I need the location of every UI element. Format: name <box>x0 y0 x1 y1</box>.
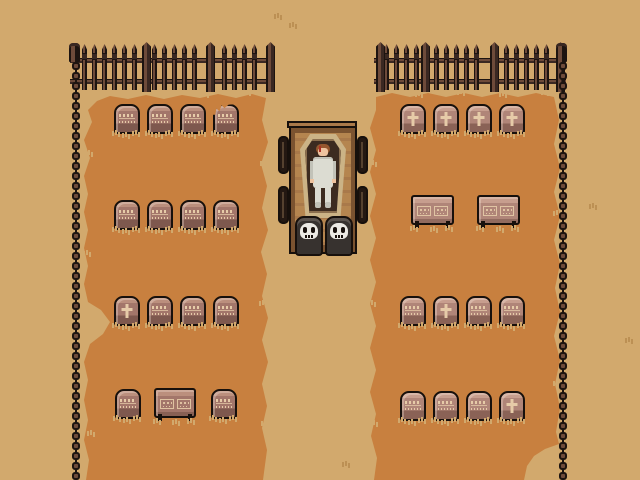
side-fence-post <box>72 102 80 110</box>
fence-post <box>206 42 215 92</box>
side-fence-post <box>72 392 80 400</box>
inscription-line <box>218 306 234 309</box>
inscription-line <box>218 114 234 117</box>
grass-tuft <box>148 226 150 231</box>
side-fence-post <box>559 302 567 310</box>
memorial-monument[interactable] <box>411 195 454 225</box>
hearse-cart[interactable] <box>278 120 368 256</box>
grass-tuft <box>467 322 469 327</box>
fence-picket <box>444 44 449 90</box>
side-fence-post <box>72 172 80 180</box>
grass-tuft <box>510 419 512 424</box>
grass-tuft <box>191 324 193 329</box>
grass-tuft <box>115 130 117 135</box>
epitaph-inscription <box>405 306 421 315</box>
side-fence-post <box>72 442 80 450</box>
epitaph-inscription <box>185 306 201 315</box>
grass-tuft <box>448 225 450 230</box>
side-fence-post <box>559 112 567 120</box>
inscription-line <box>119 114 135 117</box>
grass-tuft <box>168 130 170 135</box>
fence-picket <box>232 44 237 90</box>
inscription-line <box>152 306 168 309</box>
grass-tuft <box>421 322 423 327</box>
cross-engraving <box>408 112 419 126</box>
grass-tuft <box>115 226 117 231</box>
grass-tuft <box>168 226 170 231</box>
grass-tuft <box>434 417 436 422</box>
inscription-line <box>120 403 136 404</box>
corpse[interactable] <box>305 139 341 213</box>
side-fence-post <box>72 312 80 320</box>
epitaph-inscription <box>152 306 168 315</box>
side-fence-post <box>72 62 80 70</box>
inscription-line <box>185 214 201 215</box>
fence-picket <box>172 44 177 90</box>
side-fence-post <box>72 212 80 220</box>
grass-tuft <box>232 415 234 420</box>
grass-tuft <box>148 130 150 135</box>
memorial-plaque <box>434 206 448 216</box>
corpse-foot <box>315 202 321 208</box>
grass-tuft <box>86 250 88 255</box>
inscription-line <box>471 405 487 406</box>
side-fence-post <box>72 202 80 210</box>
memorial-plaque <box>160 399 174 409</box>
skull-mouth <box>305 235 307 238</box>
side-fence-post <box>72 272 80 280</box>
grass-tuft <box>201 322 203 327</box>
epitaph-inscription <box>218 114 234 123</box>
side-fence-post <box>559 472 567 480</box>
memorial-plaque <box>483 206 497 216</box>
fence-corner-post <box>69 43 80 62</box>
epitaph-inscription <box>471 401 487 410</box>
inscription-line <box>152 118 168 119</box>
inscription-line <box>185 114 201 117</box>
coffin-interior <box>305 139 341 213</box>
side-fence-post <box>72 262 80 270</box>
epitaph-inscription <box>185 114 201 123</box>
fence-picket <box>404 44 409 90</box>
inscription-line <box>218 121 234 123</box>
inscription-line <box>405 401 421 404</box>
grass-tuft <box>520 130 522 135</box>
side-fence-post <box>72 222 80 230</box>
grass-tuft <box>477 419 479 424</box>
grass-tuft <box>115 322 117 327</box>
iron-fence-segment <box>374 43 566 93</box>
skull-face-icon <box>330 223 348 239</box>
grass-tuft <box>592 203 594 208</box>
corpse-leg <box>325 188 331 203</box>
cross-engraving <box>507 399 518 413</box>
grass-tuft <box>158 324 160 329</box>
inscription-line <box>152 313 168 315</box>
grass-tuft <box>444 324 446 329</box>
grass-tuft <box>201 226 203 231</box>
cross-engraving <box>441 304 452 318</box>
grass-tuft <box>168 322 170 327</box>
epitaph-inscription <box>504 306 520 315</box>
side-fence-post <box>72 332 80 340</box>
inscription-line <box>216 399 232 402</box>
grass-tuft <box>234 130 236 135</box>
cart-wheel <box>278 186 289 224</box>
grass-tuft <box>212 415 214 420</box>
side-fence-post <box>559 402 567 410</box>
memorial-monument[interactable] <box>154 388 196 418</box>
side-fence-post <box>72 472 80 480</box>
inscription-line <box>504 306 520 309</box>
epitaph-inscription <box>218 306 234 315</box>
inscription-line <box>119 121 135 123</box>
side-fence-post <box>559 382 567 390</box>
side-fence-post <box>559 252 567 260</box>
corpse-face <box>318 148 328 156</box>
inscription-line <box>405 306 421 309</box>
grass-tuft <box>181 226 183 231</box>
side-fence-post <box>559 82 567 90</box>
inscription-line <box>471 306 487 309</box>
grass-tuft <box>500 130 502 135</box>
grass-tuft <box>191 132 193 137</box>
epitaph-inscription <box>471 306 487 315</box>
cart-wheel <box>357 186 368 224</box>
side-fence-post <box>559 182 567 190</box>
side-fence-post <box>559 462 567 470</box>
fence-picket <box>92 44 97 90</box>
inscription-line <box>185 118 201 119</box>
inscription-line <box>405 310 421 311</box>
side-fence-post <box>72 452 80 460</box>
grass-tuft <box>158 228 160 233</box>
grass-tuft <box>181 322 183 327</box>
grass-tuft <box>234 322 236 327</box>
side-fence-post <box>72 192 80 200</box>
side-fence-post <box>559 372 567 380</box>
grass-tuft <box>520 417 522 422</box>
coffin[interactable] <box>300 134 346 218</box>
fence-picket <box>122 44 127 90</box>
fence-post <box>421 42 430 92</box>
epitaph-inscription <box>185 210 201 219</box>
side-fence-post <box>72 152 80 160</box>
grass-tuft <box>444 132 446 137</box>
grass-tuft <box>126 417 128 422</box>
grass-tuft <box>90 430 92 435</box>
grass-tuft <box>411 132 413 137</box>
inscription-line <box>119 210 135 213</box>
fence-picket <box>504 44 509 90</box>
grass-tuft <box>262 300 264 305</box>
grass-tuft <box>411 324 413 329</box>
inscription-line <box>405 405 421 406</box>
epitaph-inscription <box>152 210 168 219</box>
grass-tuft <box>222 417 224 422</box>
side-fence-post <box>72 292 80 300</box>
inscription-line <box>185 210 201 213</box>
grass-tuft <box>487 417 489 422</box>
grass-tuft <box>136 415 138 420</box>
side-fence-post <box>559 72 567 80</box>
grass-tuft <box>421 130 423 135</box>
side-fence-post <box>559 212 567 220</box>
side-fence-post <box>559 172 567 180</box>
side-fence-post <box>559 242 567 250</box>
side-fence-post <box>559 442 567 450</box>
side-fence-post <box>72 242 80 250</box>
cart-wheel <box>278 136 289 174</box>
grass-tuft <box>292 22 294 27</box>
fence-picket <box>132 44 137 90</box>
cross-engraving <box>122 304 133 318</box>
grass-tuft <box>487 130 489 135</box>
inscription-line <box>438 401 454 404</box>
skull-creature[interactable] <box>295 216 323 256</box>
grass-tuft <box>433 226 435 231</box>
side-fence-post <box>72 162 80 170</box>
side-fence-post <box>72 382 80 390</box>
grass-tuft <box>191 228 193 233</box>
grass-tuft <box>467 130 469 135</box>
grass-patch-right <box>370 93 560 480</box>
side-fence-post <box>72 462 80 470</box>
inscription-line <box>185 121 201 123</box>
grass-tuft <box>135 226 137 231</box>
side-fence-post <box>559 322 567 330</box>
side-fence-post <box>559 432 567 440</box>
grass-tuft <box>264 420 266 425</box>
grass-tuft <box>371 300 373 305</box>
grass-tuft <box>372 160 374 165</box>
side-fence-post <box>72 372 80 380</box>
grass-tuft <box>477 132 479 137</box>
corpse-hand <box>332 179 336 183</box>
epitaph-inscription <box>119 114 135 123</box>
cross-engraving <box>507 112 518 126</box>
inscription-line <box>120 399 136 402</box>
memorial-plaque <box>417 206 431 216</box>
grass-tuft <box>434 130 436 135</box>
grass-tuft <box>487 322 489 327</box>
fence-picket <box>152 44 157 90</box>
grass-tuft <box>224 132 226 137</box>
cross-engraving <box>474 112 485 126</box>
skull-eyes <box>303 227 307 233</box>
fence-post <box>266 42 275 92</box>
side-fence-post <box>559 152 567 160</box>
inscription-line <box>119 214 135 215</box>
side-fence-post <box>559 292 567 300</box>
side-fence-post <box>72 232 80 240</box>
skull-creature[interactable] <box>325 216 353 256</box>
skull-eyes <box>333 227 337 233</box>
inscription-line <box>504 310 520 311</box>
side-fence-post <box>559 342 567 350</box>
inscription-line <box>216 406 232 408</box>
grass-tuft <box>454 417 456 422</box>
side-fence-post <box>72 322 80 330</box>
grass-tuft <box>125 228 127 233</box>
grass-tuft <box>444 419 446 424</box>
inscription-line <box>405 408 421 410</box>
side-fence-post <box>559 362 567 370</box>
side-fence-post <box>72 362 80 370</box>
fence-picket <box>252 44 257 90</box>
inscription-line <box>152 214 168 215</box>
side-fence-post <box>72 122 80 130</box>
inscription-line <box>218 217 234 219</box>
grass-tuft <box>401 130 403 135</box>
side-fence-post <box>72 72 80 80</box>
game-viewport[interactable] <box>0 0 640 480</box>
grass-tuft <box>263 160 265 165</box>
grass-tuft <box>88 150 90 155</box>
fence-picket <box>434 44 439 90</box>
inscription-line <box>218 210 234 213</box>
epitaph-inscription <box>216 399 232 408</box>
side-fence-post <box>72 92 80 100</box>
epitaph-inscription <box>120 399 136 408</box>
grass-tuft <box>201 130 203 135</box>
side-fence-post <box>72 132 80 140</box>
iron-fence-segment <box>70 43 273 93</box>
fence-picket <box>162 44 167 90</box>
inscription-line <box>405 313 421 315</box>
grass-tuft <box>467 417 469 422</box>
corpse-hand <box>310 179 314 183</box>
inscription-line <box>152 310 168 311</box>
memorial-monument[interactable] <box>477 195 520 225</box>
grass-tuft <box>401 417 403 422</box>
grass-tuft <box>135 322 137 327</box>
inscription-line <box>120 406 136 408</box>
corpse-leg <box>315 188 321 203</box>
fence-corner-post <box>556 43 567 62</box>
grass-tuft <box>190 418 192 423</box>
inscription-line <box>152 217 168 219</box>
inscription-line <box>438 408 454 410</box>
inscription-line <box>152 121 168 123</box>
inscription-line <box>471 313 487 315</box>
fence-picket <box>464 44 469 90</box>
grass-tuft <box>214 226 216 231</box>
grass-tuft <box>520 322 522 327</box>
grass-tuft <box>454 130 456 135</box>
side-fence-post <box>72 112 80 120</box>
fence-picket <box>182 44 187 90</box>
cross-engraving <box>441 112 452 126</box>
side-fence-post <box>559 422 567 430</box>
grass-tuft <box>214 322 216 327</box>
side-fence-post <box>72 302 80 310</box>
grass-tuft <box>373 420 375 425</box>
inscription-line <box>185 310 201 311</box>
inscription-line <box>216 403 232 404</box>
grass-tuft <box>628 337 630 342</box>
side-fence-post <box>559 312 567 320</box>
grass-tuft <box>556 210 558 215</box>
side-fence-post <box>559 282 567 290</box>
side-fence-post <box>559 102 567 110</box>
side-fence-post <box>559 262 567 270</box>
grass-tuft <box>510 132 512 137</box>
fence-picket <box>524 44 529 90</box>
side-fence-post <box>559 132 567 140</box>
side-fence-post <box>72 182 80 190</box>
grass-tuft <box>479 225 481 230</box>
inscription-line <box>185 217 201 219</box>
grass-tuft <box>434 322 436 327</box>
side-fence-post <box>559 92 567 100</box>
skull-face-icon <box>300 223 318 239</box>
inscription-line <box>185 306 201 309</box>
side-fence-post <box>72 142 80 150</box>
fence-post <box>142 42 151 92</box>
grass-tuft <box>125 324 127 329</box>
side-fence-post <box>559 392 567 400</box>
grass-tuft <box>234 226 236 231</box>
grass-tuft <box>499 226 501 231</box>
fence-post <box>376 42 385 92</box>
fence-picket <box>414 44 419 90</box>
fence-post <box>490 42 499 92</box>
fence-picket <box>474 44 479 90</box>
grass-tuft <box>345 461 347 466</box>
inscription-line <box>471 401 487 404</box>
grass-tuft <box>556 380 558 385</box>
side-fence-post <box>559 352 567 360</box>
side-fence-post <box>72 422 80 430</box>
inscription-line <box>218 214 234 215</box>
inscription-line <box>119 118 135 119</box>
grass-tuft <box>158 132 160 137</box>
inscription-line <box>218 313 234 315</box>
grass-tuft <box>224 324 226 329</box>
side-fence-post <box>559 332 567 340</box>
fence-picket <box>394 44 399 90</box>
side-fence-post <box>559 272 567 280</box>
grass-tuft <box>125 132 127 137</box>
grass-tuft <box>401 322 403 327</box>
side-fence-post <box>72 352 80 360</box>
fence-picket <box>102 44 107 90</box>
grass-tuft <box>477 324 479 329</box>
inscription-line <box>504 313 520 315</box>
inscription-line <box>185 313 201 315</box>
blood-mark <box>319 146 321 152</box>
grass-tuft <box>148 322 150 327</box>
grass-tuft <box>500 417 502 422</box>
inscription-line <box>152 114 168 117</box>
side-fence-post <box>559 122 567 130</box>
grass-tuft <box>514 225 516 230</box>
grass-tuft <box>224 228 226 233</box>
fence-picket <box>192 44 197 90</box>
grass-tuft <box>510 324 512 329</box>
inscription-line <box>438 405 454 406</box>
side-fence-post <box>559 202 567 210</box>
grass-tuft <box>277 13 279 18</box>
fence-picket <box>242 44 247 90</box>
grass-tuft <box>135 130 137 135</box>
epitaph-inscription <box>119 210 135 219</box>
side-fence-post <box>72 252 80 260</box>
grass-tuft <box>500 322 502 327</box>
grass-tuft <box>421 417 423 422</box>
epitaph-inscription <box>405 401 421 410</box>
